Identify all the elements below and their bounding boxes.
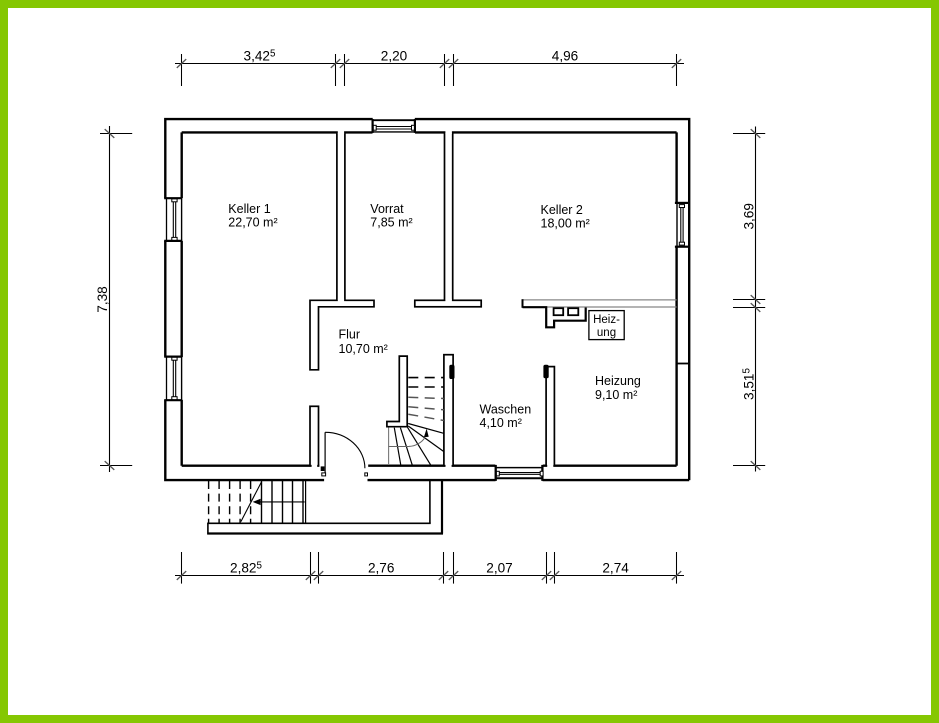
svg-text:4,10 m²: 4,10 m²: [480, 416, 522, 430]
svg-text:2,07: 2,07: [486, 560, 512, 575]
svg-text:10,70 m²: 10,70 m²: [339, 342, 388, 356]
svg-text:3,69: 3,69: [742, 203, 757, 229]
svg-text:Keller 2: Keller 2: [541, 203, 583, 217]
svg-text:Vorrat: Vorrat: [370, 202, 404, 216]
svg-text:7,38: 7,38: [95, 286, 110, 312]
svg-text:Flur: Flur: [339, 328, 361, 342]
svg-text:Waschen: Waschen: [480, 403, 532, 417]
svg-text:Heizung: Heizung: [595, 374, 641, 388]
svg-text:2,74: 2,74: [602, 560, 629, 575]
svg-text:Heiz-: Heiz-: [593, 314, 620, 326]
svg-text:7,85 m²: 7,85 m²: [370, 215, 412, 229]
svg-text:4,96: 4,96: [552, 48, 578, 63]
svg-text:22,70 m²: 22,70 m²: [228, 215, 277, 229]
svg-text:Keller 1: Keller 1: [228, 202, 270, 216]
svg-text:18,00 m²: 18,00 m²: [541, 217, 590, 231]
svg-text:9,10 m²: 9,10 m²: [595, 388, 637, 402]
svg-text:ung: ung: [597, 327, 616, 339]
svg-text:2,76: 2,76: [368, 560, 394, 575]
svg-text:2,20: 2,20: [381, 48, 408, 63]
